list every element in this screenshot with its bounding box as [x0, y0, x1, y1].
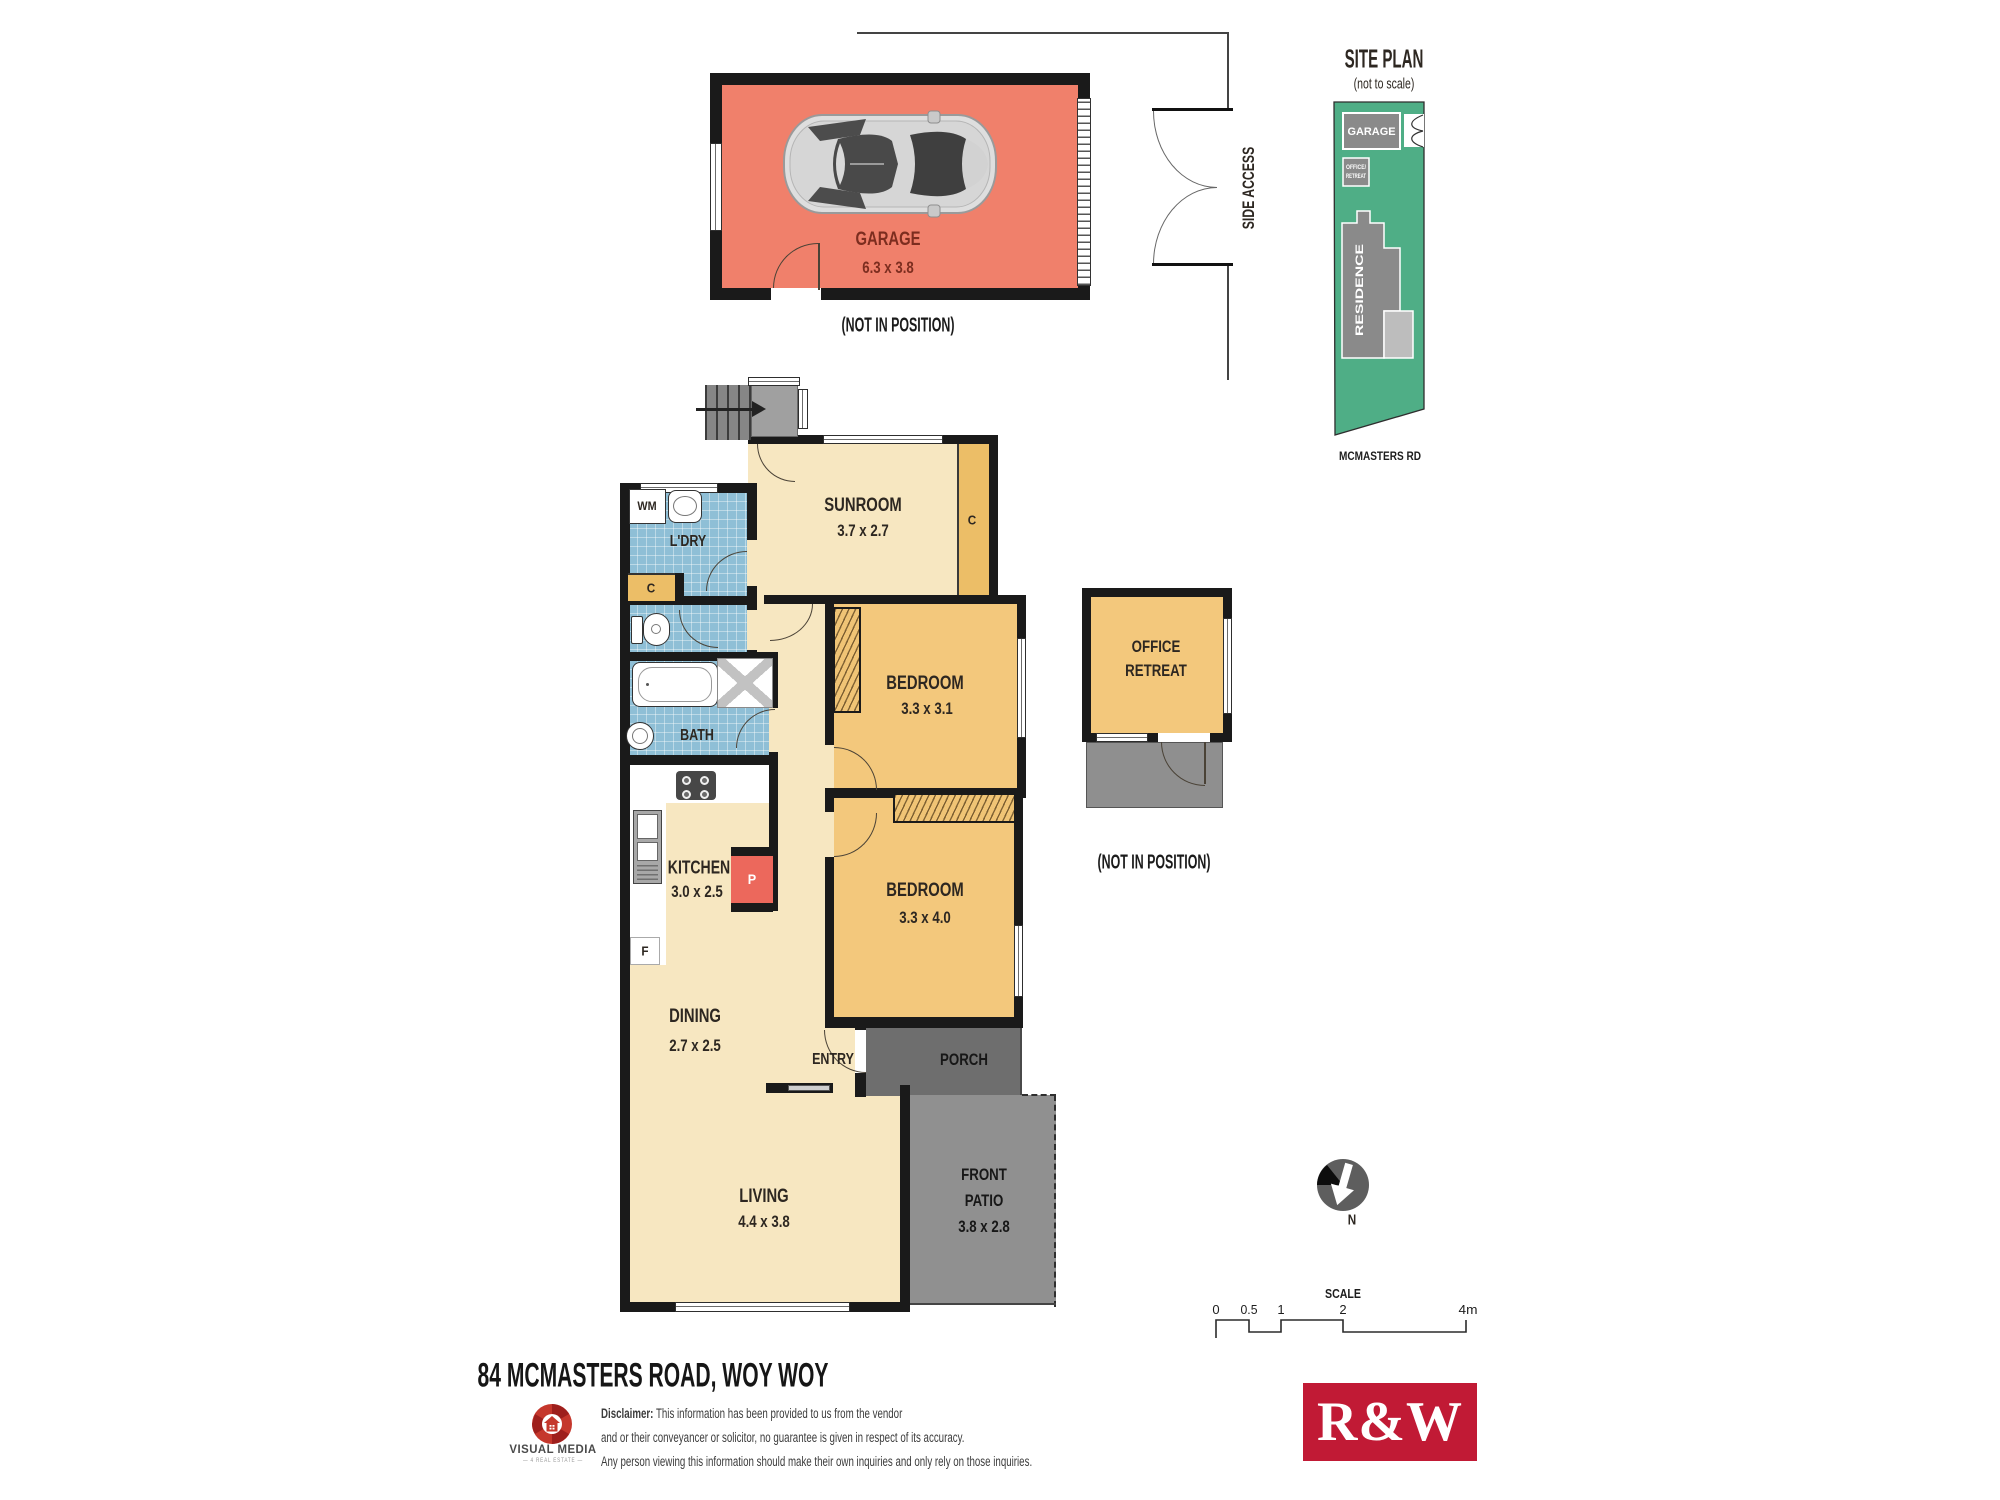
garage-dims: 6.3 x 3.8 [862, 258, 914, 278]
disclaimer-line3: Any person viewing this information shou… [601, 1450, 1032, 1474]
bedroom1-window [1017, 638, 1026, 738]
office-door-gap [1158, 733, 1210, 742]
sunroom-window [823, 435, 943, 444]
site-patio [1384, 311, 1413, 358]
wall [710, 288, 1090, 300]
burner [682, 776, 691, 785]
garage-label: GARAGE [855, 229, 920, 251]
landing-door [798, 389, 808, 429]
disclaimer-line1: Disclaimer: This information has been pr… [601, 1402, 1032, 1426]
garage-roller-door [1077, 98, 1091, 286]
patio-dashed-boundary [1054, 1095, 1056, 1307]
sunroom-cupboard-label: C [968, 513, 976, 528]
burner [700, 790, 709, 799]
kitchen-dims: 3.0 x 2.5 [671, 882, 723, 902]
garage-note: (NOT IN POSITION) [842, 315, 955, 338]
toilet-tank [631, 616, 643, 644]
laundry-cupboard-label: C [647, 581, 655, 596]
patio-dims: 3.8 x 2.8 [958, 1217, 1010, 1237]
burner [700, 776, 709, 785]
disclaimer-line2: and or their conveyancer or solicitor, n… [601, 1426, 1032, 1450]
wall [620, 755, 777, 765]
office-window [1096, 733, 1148, 742]
entry-side-window [788, 1085, 830, 1091]
steps-arrow-line [696, 408, 752, 411]
gate-swing-arc [1153, 111, 1217, 188]
wall [710, 73, 1090, 85]
scale-tick-4m: 4m [1459, 1302, 1478, 1317]
porch-label: PORCH [940, 1050, 988, 1070]
disclaimer-label: Disclaimer: [601, 1406, 653, 1421]
bedroom2-label: BEDROOM [886, 880, 963, 902]
garage-window [710, 143, 722, 231]
fridge-door [637, 842, 658, 861]
north-arrow-icon [1314, 1156, 1372, 1214]
address-title: 84 MCMASTERS ROAD, WOY WOY [478, 1357, 829, 1396]
landing-window [748, 377, 800, 386]
scale-title: SCALE [1325, 1287, 1361, 1301]
office-label1: OFFICE [1132, 637, 1181, 657]
wall [731, 903, 773, 912]
garage-door-leaf [818, 243, 820, 290]
living-label: LIVING [739, 1186, 788, 1208]
dining-label: DINING [669, 1006, 721, 1028]
site-residence-label: RESIDENCE [1354, 244, 1366, 336]
pantry-label: P [748, 871, 756, 887]
gate-swing-arc [1153, 187, 1217, 264]
rw-logo: R&W [1303, 1383, 1477, 1461]
site-road-label: MCMASTERS RD [1339, 449, 1421, 463]
scale-tick-05: 0.5 [1241, 1302, 1258, 1317]
entry-label: ENTRY [812, 1051, 854, 1069]
boundary-line [1227, 32, 1229, 110]
bath-basin-inner [632, 728, 648, 744]
scale-bar: SCALE 0 0.5 1 2 4m [1200, 1284, 1490, 1346]
scale-tick-1: 1 [1277, 1302, 1284, 1317]
site-plan-subtitle: (not to scale) [1354, 76, 1415, 93]
wall [675, 573, 684, 605]
dining-dims: 2.7 x 2.5 [669, 1036, 721, 1056]
wall [825, 595, 1026, 604]
bedroom2-robe [893, 793, 1016, 823]
laundry-sink-basin [673, 496, 697, 516]
fridge-door [637, 814, 658, 839]
wall [731, 847, 773, 856]
car-icon [780, 105, 1000, 223]
door-gap [747, 540, 757, 586]
scale-bar-line [1216, 1320, 1466, 1338]
bathtub-inner [638, 667, 712, 702]
wall [989, 435, 998, 604]
bedroom2-dims: 3.3 x 4.0 [899, 908, 951, 928]
wall [1082, 588, 1232, 597]
door-gap [825, 745, 834, 789]
sunroom-dims: 3.7 x 2.7 [837, 521, 889, 541]
north-label: N [1348, 1212, 1356, 1229]
living-window [675, 1302, 850, 1312]
patio-dashed-boundary [1022, 1094, 1056, 1096]
patio-label2: PATIO [965, 1191, 1004, 1211]
site-plan-map: GARAGE OFFICE/ RETREAT RESIDENCE MCMASTE… [1330, 98, 1430, 470]
fridge-label: F [641, 944, 648, 959]
toilet-dot [651, 624, 661, 634]
shower [717, 658, 773, 708]
boundary-line [1227, 266, 1229, 380]
door-gap [747, 610, 757, 650]
site-garage-label: GARAGE [1348, 126, 1396, 138]
visual-media-name: VISUAL MEDIA [509, 1442, 596, 1456]
bedroom2-window [1014, 925, 1023, 997]
site-office-label2: RETREAT [1346, 174, 1366, 180]
kitchen-label: KITCHEN [668, 858, 730, 879]
living-dims: 4.4 x 3.8 [738, 1212, 790, 1232]
patio-label1: FRONT [961, 1165, 1007, 1185]
office-label2: RETREAT [1125, 661, 1187, 681]
burner [682, 790, 691, 799]
wall [620, 483, 630, 1312]
site-plan-title: SITE PLAN [1345, 44, 1424, 75]
patio-edge [910, 1303, 1056, 1305]
scale-tick-0: 0 [1212, 1302, 1219, 1317]
scale-tick-2: 2 [1339, 1302, 1346, 1317]
steps-arrow-head [752, 401, 766, 417]
porch-edge [1020, 1028, 1022, 1096]
exterior-mask [628, 443, 748, 484]
closet-divider [957, 443, 959, 596]
visual-media-icon [529, 1403, 577, 1447]
wall [900, 1085, 910, 1312]
rw-logo-text: R&W [1317, 1390, 1463, 1454]
disclaimer: Disclaimer: This information has been pr… [601, 1402, 1032, 1474]
bathtub-drain [646, 683, 649, 686]
laundry-label: L'DRY [670, 533, 706, 551]
sunroom-label: SUNROOM [824, 495, 901, 517]
bath-label: BATH [680, 727, 714, 745]
visual-media-sub: — 4 REAL ESTATE — [523, 1458, 583, 1464]
fridge-grill [637, 864, 658, 880]
bedroom1-dims: 3.3 x 3.1 [901, 699, 953, 719]
disclaimer-text1: This information has been provided to us… [653, 1406, 902, 1421]
side-access-label: SIDE ACCESS [1239, 147, 1259, 230]
exterior-mask [997, 435, 1026, 597]
site-office [1343, 158, 1369, 186]
steps [705, 385, 751, 440]
site-office-label1: OFFICE/ [1346, 165, 1366, 171]
wall [764, 595, 826, 604]
wall [1082, 588, 1091, 742]
bedroom1-label: BEDROOM [886, 673, 963, 695]
bedroom1-robe [833, 607, 861, 713]
floorplan-page: GARAGE 6.3 x 3.8 (NOT IN POSITION) SIDE … [0, 0, 2000, 1500]
office-note: (NOT IN POSITION) [1098, 852, 1211, 875]
gate-post [1152, 263, 1233, 266]
office-window [1223, 618, 1232, 714]
door-gap [825, 812, 834, 857]
wm-label: WM [637, 499, 656, 513]
boundary-line [857, 32, 1228, 34]
garage-door-gap [771, 288, 821, 300]
